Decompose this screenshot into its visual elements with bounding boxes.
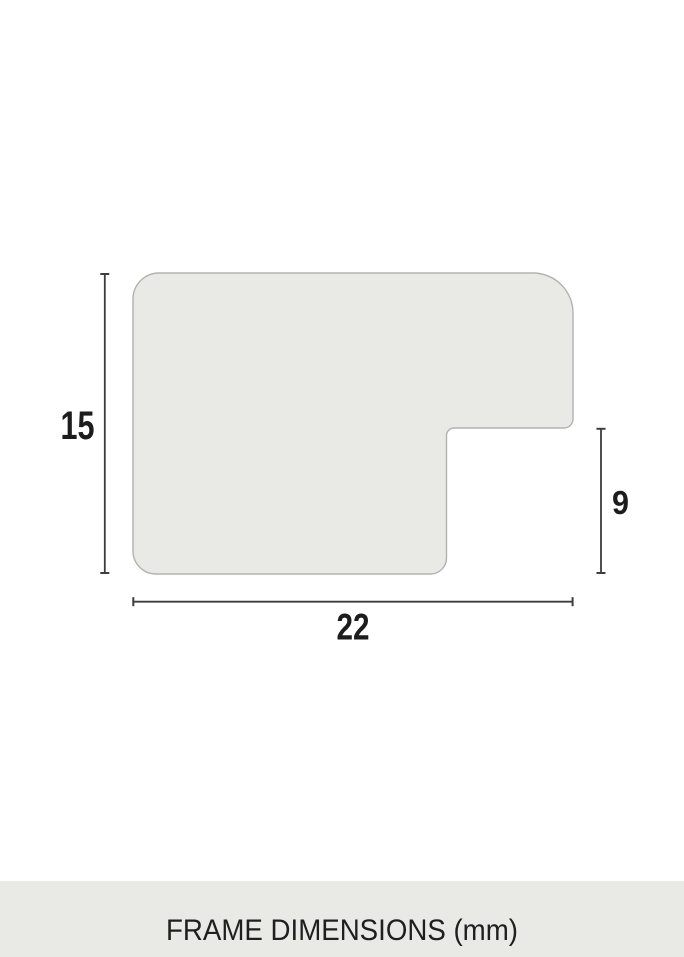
svg-text:FRAME DIMENSIONS (mm): FRAME DIMENSIONS (mm): [166, 914, 518, 947]
svg-text:9: 9: [612, 484, 629, 521]
svg-text:22: 22: [337, 607, 370, 648]
svg-text:15: 15: [61, 404, 95, 448]
